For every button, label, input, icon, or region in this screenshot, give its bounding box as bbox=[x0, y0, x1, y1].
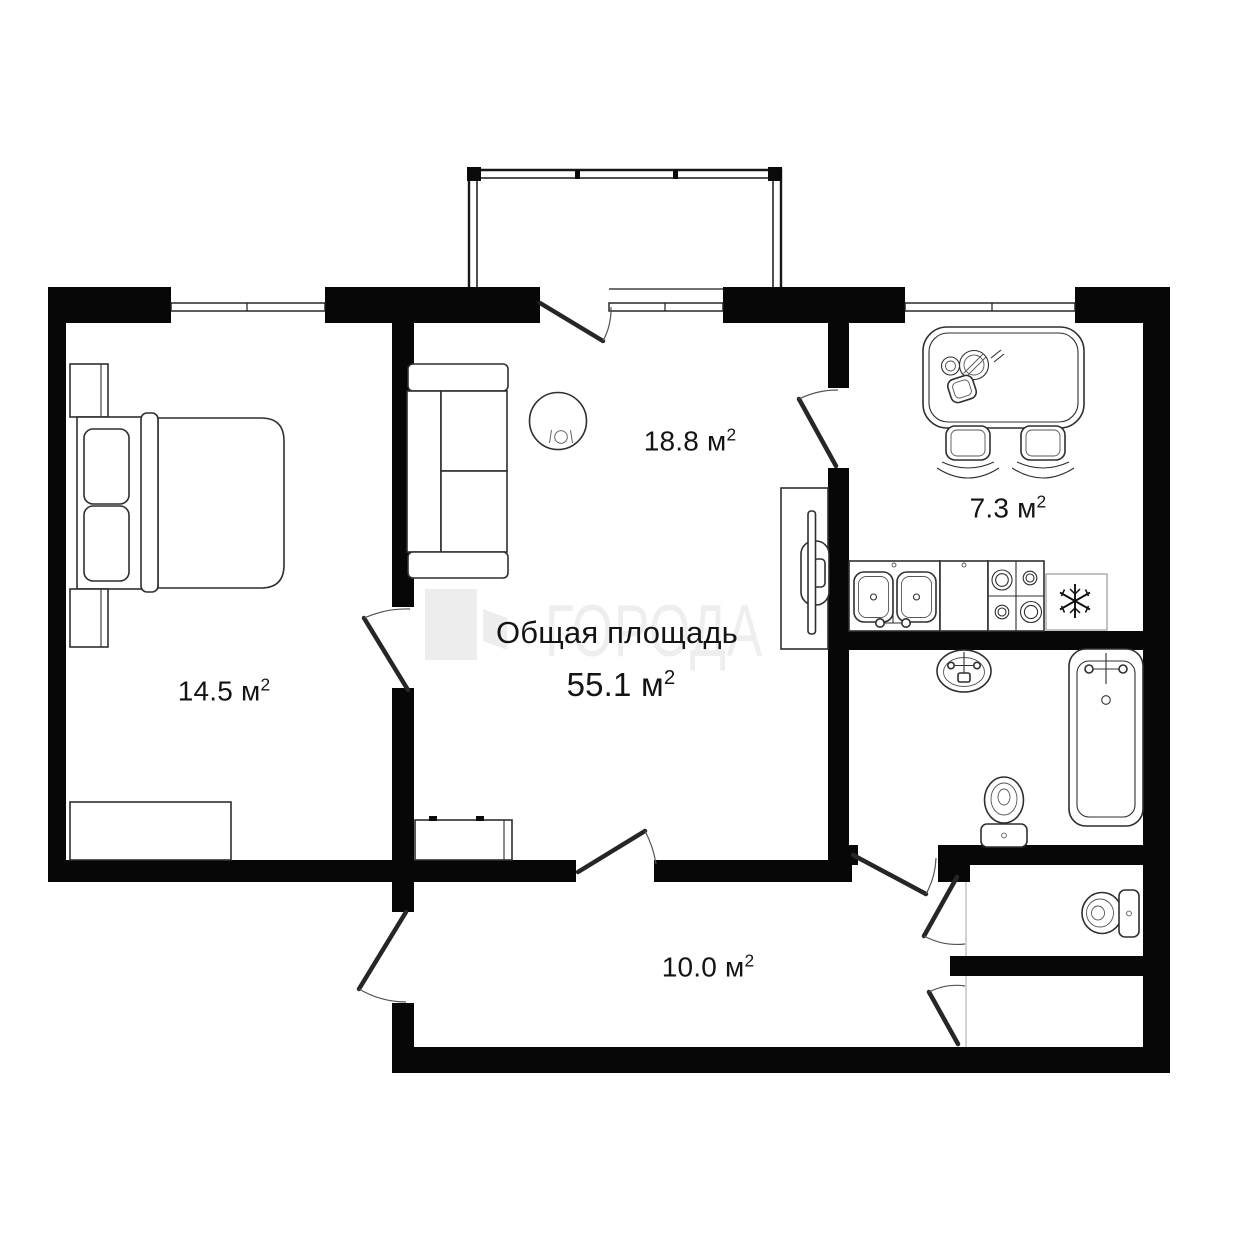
toilet-bowl bbox=[985, 777, 1024, 823]
total-area-title: Общая площадь bbox=[496, 615, 738, 651]
faucet-knob bbox=[876, 619, 884, 627]
bed-headboard-bar-icon bbox=[141, 413, 158, 592]
living-room-area-sup: 2 bbox=[726, 424, 736, 444]
living-room-area-label: 18.8 м2 bbox=[644, 424, 737, 457]
tv-screen-icon bbox=[808, 511, 816, 634]
floor-plan: ГОРОДА bbox=[0, 0, 1242, 1242]
total-area-title-text: Общая площадь bbox=[496, 615, 738, 650]
washbasin-base bbox=[958, 673, 970, 682]
wall-left bbox=[48, 287, 66, 882]
balcony bbox=[467, 167, 782, 287]
bedroom-area-sup: 2 bbox=[260, 674, 270, 694]
wall-kitchen-bath bbox=[828, 631, 1143, 650]
kitchen-window-icon bbox=[905, 303, 1075, 311]
round-table-icon bbox=[530, 393, 587, 450]
pillow-icon bbox=[84, 506, 129, 581]
door-leaf bbox=[929, 992, 958, 1044]
chair-back bbox=[937, 468, 999, 478]
dining-table-icon bbox=[923, 327, 1084, 428]
toilet-tank bbox=[981, 824, 1027, 847]
sideboard-icon bbox=[415, 820, 512, 860]
toilet-tank bbox=[1119, 890, 1139, 937]
chair-back bbox=[942, 462, 994, 468]
refrigerator-icon bbox=[1046, 574, 1107, 630]
balcony-door-opening bbox=[540, 287, 609, 323]
wall-wc-storage bbox=[950, 956, 1143, 976]
nightstand-icon bbox=[70, 364, 108, 417]
bedroom-area-value: 14.5 м bbox=[178, 676, 261, 707]
bathtub-knob bbox=[1119, 665, 1127, 673]
pillow-icon bbox=[84, 429, 129, 504]
bedroom-window-icon bbox=[171, 303, 325, 311]
living-room-area-value: 18.8 м bbox=[644, 426, 727, 457]
wall-hall-bottom bbox=[392, 1047, 1170, 1073]
stove-icon bbox=[988, 561, 1044, 631]
sofa-armrest bbox=[408, 364, 508, 391]
wc-fixtures bbox=[1082, 890, 1139, 937]
chair-back bbox=[1012, 468, 1074, 478]
total-area-value: 55.1 м bbox=[567, 666, 664, 703]
bathtub-knob bbox=[1085, 665, 1093, 673]
wc-door-icon bbox=[924, 877, 965, 944]
door-arc bbox=[924, 936, 965, 944]
bed-blanket-icon bbox=[158, 418, 284, 588]
kitchen-counter bbox=[940, 561, 988, 631]
watermark-logo-icon bbox=[425, 589, 477, 660]
balcony-rail-tick bbox=[575, 170, 580, 179]
balcony-railing-inner bbox=[477, 178, 773, 287]
chair-seat bbox=[946, 426, 990, 460]
hallway-area-sup: 2 bbox=[744, 950, 754, 970]
door-arc bbox=[645, 831, 656, 864]
living-hall-door-opening bbox=[576, 860, 654, 882]
sideboard-handle bbox=[476, 816, 484, 821]
washbasin-knob bbox=[974, 662, 980, 668]
hallway-area-value: 10.0 м bbox=[662, 952, 745, 983]
kitchen-furniture bbox=[849, 327, 1107, 631]
sofa-backrest bbox=[407, 391, 441, 552]
bedroom-furniture bbox=[70, 364, 284, 860]
chair-icon bbox=[937, 426, 999, 478]
door-arc bbox=[929, 985, 965, 992]
faucet-knob bbox=[902, 619, 910, 627]
bedroom-door-opening bbox=[392, 607, 414, 688]
nightstand-icon bbox=[70, 589, 108, 647]
wc-toilet-icon bbox=[1082, 890, 1139, 937]
storage-door-icon bbox=[929, 985, 965, 1044]
kitchen-area-sup: 2 bbox=[1037, 491, 1047, 511]
wall-wc-stub bbox=[938, 845, 970, 882]
toilet-bowl bbox=[1082, 893, 1122, 934]
sofa-seat bbox=[441, 471, 507, 552]
sofa-armrest bbox=[408, 552, 508, 578]
balcony-railing-outer bbox=[469, 170, 781, 287]
balcony-corner-post bbox=[467, 167, 481, 181]
chair-icon bbox=[1012, 426, 1074, 478]
kitchen-area-label: 7.3 м2 bbox=[970, 491, 1047, 524]
sideboard-handle bbox=[429, 816, 437, 821]
hallway-area-label: 10.0 м2 bbox=[662, 950, 755, 983]
toilet-icon bbox=[981, 777, 1027, 847]
bedroom-area-label: 14.5 м2 bbox=[178, 674, 271, 707]
washbasin-icon bbox=[937, 650, 991, 692]
bathtub-icon bbox=[1069, 649, 1143, 826]
balcony-rail-tick bbox=[673, 170, 678, 179]
chair-seat bbox=[1021, 426, 1065, 460]
sofa-seat bbox=[441, 391, 507, 471]
chair-back bbox=[1017, 462, 1069, 468]
kitchen-area-value: 7.3 м bbox=[970, 493, 1037, 524]
dresser-icon bbox=[70, 802, 231, 860]
wall-right bbox=[1143, 287, 1170, 1073]
door-leaf bbox=[924, 877, 957, 936]
total-area-label: 55.1 м2 bbox=[567, 666, 676, 704]
washbasin-knob bbox=[948, 662, 954, 668]
total-area-sup: 2 bbox=[664, 666, 676, 689]
bathroom-fixtures bbox=[937, 649, 1143, 847]
balcony-window-icon bbox=[609, 303, 723, 311]
wall-bottom-band bbox=[48, 860, 852, 882]
balcony-corner-post bbox=[768, 167, 782, 181]
